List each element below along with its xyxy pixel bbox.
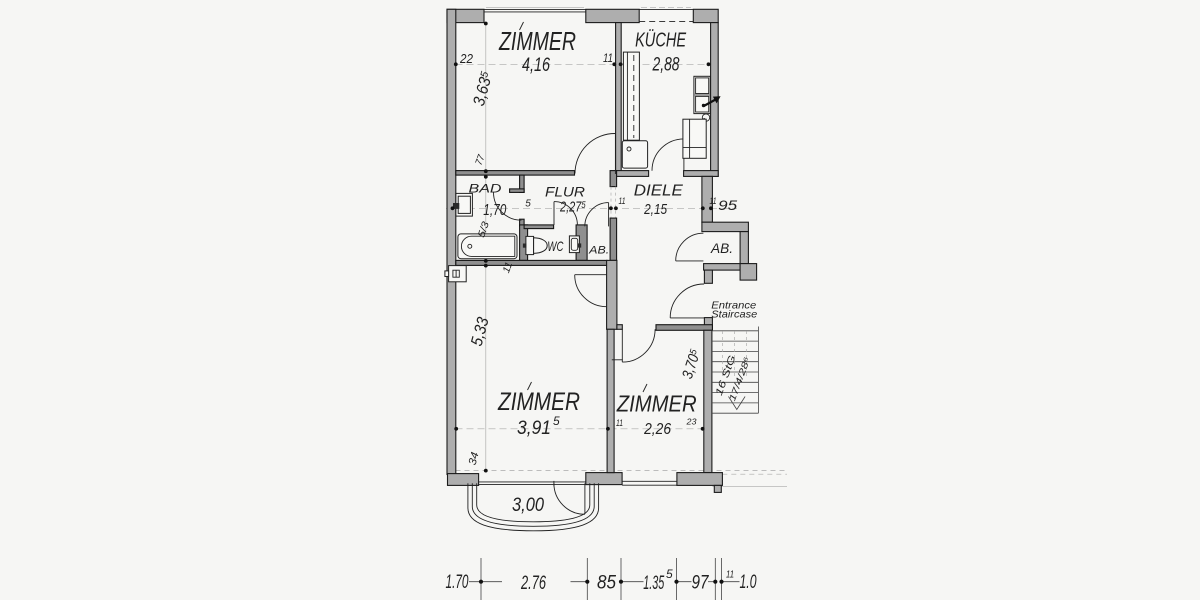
svg-text:Staircase: Staircase [711,309,757,321]
svg-text:DIELE: DIELE [634,182,683,199]
svg-text:85: 85 [597,573,616,594]
svg-text:97: 97 [692,573,710,594]
svg-text:11: 11 [710,196,717,206]
svg-text:5: 5 [666,567,673,581]
svg-text:AB.: AB. [710,240,733,256]
svg-text:11: 11 [616,418,623,428]
svg-text:2,15: 2,15 [643,201,667,218]
svg-text:ZIMMER: ZIMMER [497,388,580,416]
svg-text:1,70: 1,70 [483,202,506,219]
svg-text:ZIMMER: ZIMMER [498,26,576,56]
svg-text:3,91: 3,91 [517,418,551,439]
svg-text:BAD: BAD [469,183,502,195]
svg-text:5: 5 [553,414,560,428]
svg-text:1.0: 1.0 [740,572,757,593]
svg-text:11: 11 [619,196,626,206]
svg-text:2.76: 2.76 [520,573,546,594]
svg-text:95: 95 [718,197,737,213]
svg-text:4,16: 4,16 [522,55,550,76]
svg-text:3,00: 3,00 [512,495,544,516]
svg-text:11: 11 [603,51,613,65]
svg-text:WC: WC [547,238,564,254]
svg-text:1.35: 1.35 [643,573,664,594]
svg-text:23: 23 [685,418,697,427]
svg-text:22: 22 [459,52,473,66]
svg-text:AB.: AB. [588,244,609,256]
svg-text:KÜCHE: KÜCHE [635,30,686,52]
svg-text:2,27⁵: 2,27⁵ [559,199,586,216]
svg-text:5: 5 [525,199,531,210]
svg-text:1.70: 1.70 [446,572,469,593]
svg-text:2,88: 2,88 [652,55,680,76]
svg-text:ZIMMER: ZIMMER [616,391,697,417]
svg-text:11: 11 [726,570,734,581]
svg-text:FLUR: FLUR [545,184,585,200]
svg-text:2,26: 2,26 [643,421,671,438]
